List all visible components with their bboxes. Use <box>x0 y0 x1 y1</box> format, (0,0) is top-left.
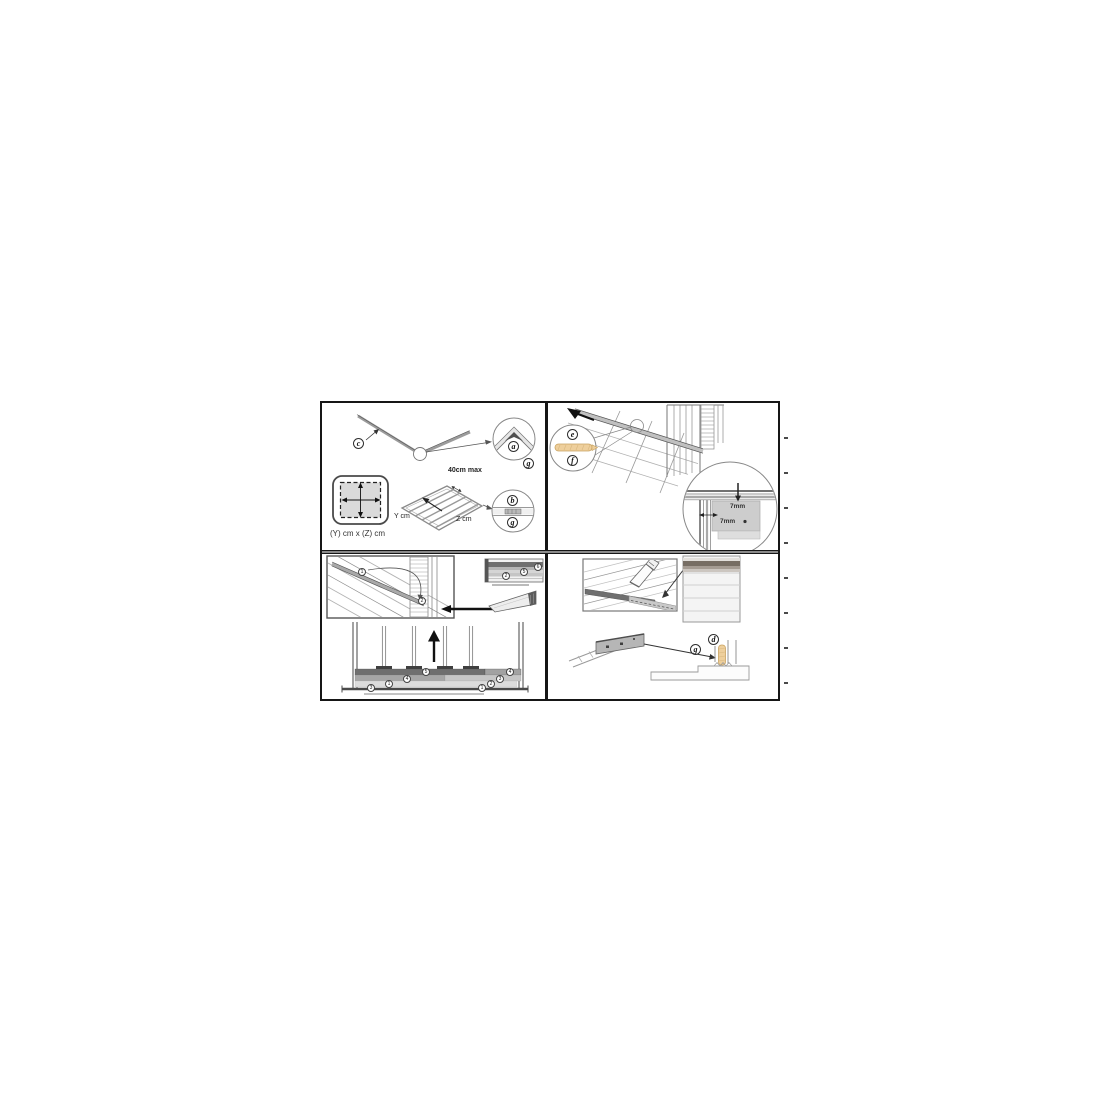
callout-e: e <box>567 429 578 440</box>
panel-roof-wall-junction: e f 7mm 7mm <box>548 403 778 550</box>
step-marker-batten-1: 1 <box>358 568 366 576</box>
layer-marker-left-4: 4 <box>403 675 411 683</box>
layer-marker-right-3: 3 <box>496 675 504 683</box>
callout-f: f <box>567 455 578 466</box>
assembly-instructions-figure: c a g b g 40cm max Y cm Z cm (Y) cm x (Z… <box>320 401 780 701</box>
callout-g-apex: g <box>523 458 534 469</box>
footprint-size-label: (Y) cm x (Z) cm <box>330 529 385 538</box>
layer-marker-left-3: 3 <box>367 684 375 692</box>
callout-a: a <box>508 441 519 452</box>
panel-trim-and-floor-layers: 1 2 2 5 6 5 4 1 3 4 3 2 1 <box>322 554 545 699</box>
gap-measure-side: 7mm <box>720 518 735 525</box>
z-dimension-label: Z cm <box>456 516 472 523</box>
step-marker-batten-2: 2 <box>418 597 426 605</box>
detail-marker-5: 5 <box>520 568 528 576</box>
panel-fascia-and-sealant: g d <box>548 554 778 699</box>
page-canvas: c a g b g 40cm max Y cm Z cm (Y) cm x (Z… <box>0 0 1100 1100</box>
y-dimension-label: Y cm <box>394 513 410 520</box>
max-spacing-note: 40cm max <box>448 467 482 474</box>
gap-measure-top: 7mm <box>730 503 745 510</box>
detail-marker-2: 2 <box>502 572 510 580</box>
layer-marker-5: 5 <box>422 668 430 676</box>
layer-marker-left-1: 1 <box>385 680 393 688</box>
fascia-sealant-diagram-art <box>548 554 778 699</box>
panel-ridge-and-floor-frame: c a g b g 40cm max Y cm Z cm (Y) cm x (Z… <box>322 403 545 550</box>
layer-marker-right-4: 4 <box>506 668 514 676</box>
callout-d: d <box>708 634 719 645</box>
trim-layers-diagram-art <box>322 554 545 699</box>
roof-junction-diagram-art <box>548 403 778 550</box>
layer-marker-right-2: 2 <box>487 680 495 688</box>
callout-c: c <box>353 438 364 449</box>
layer-marker-right-1: 1 <box>478 684 486 692</box>
callout-b: b <box>507 495 518 506</box>
callout-g-floor: g <box>507 517 518 528</box>
detail-marker-6: 6 <box>534 563 542 571</box>
callout-g: g <box>690 644 701 655</box>
